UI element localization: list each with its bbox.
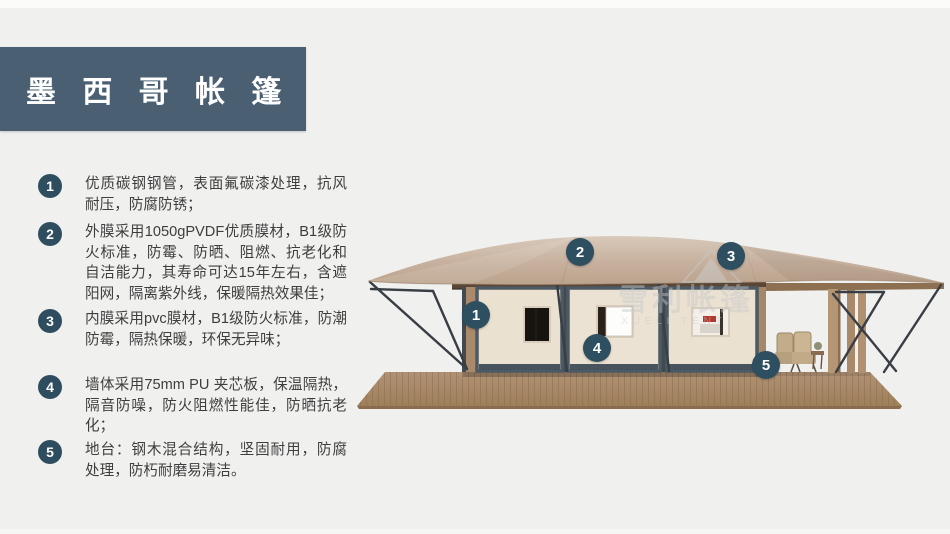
window-left [523, 306, 551, 343]
watermark-cn: 雪利帐篷 [618, 284, 754, 317]
camp-chairs [775, 332, 824, 372]
watermark-en: XUELI TENT [621, 315, 727, 327]
porch [766, 283, 944, 373]
tent-roof [368, 236, 944, 284]
callout-5: 5 [752, 351, 780, 379]
callout-2: 2 [566, 238, 594, 266]
deck-platform [357, 372, 902, 409]
callout-3: 3 [717, 242, 745, 270]
plant [814, 342, 822, 350]
side-table [811, 351, 824, 355]
callout-1: 1 [462, 301, 490, 329]
porch-beam [766, 283, 944, 291]
callout-4: 4 [583, 334, 611, 362]
tent-illustration: 雪利帐篷 XUELI TENT [0, 0, 950, 534]
wall-module-1 [477, 288, 562, 371]
